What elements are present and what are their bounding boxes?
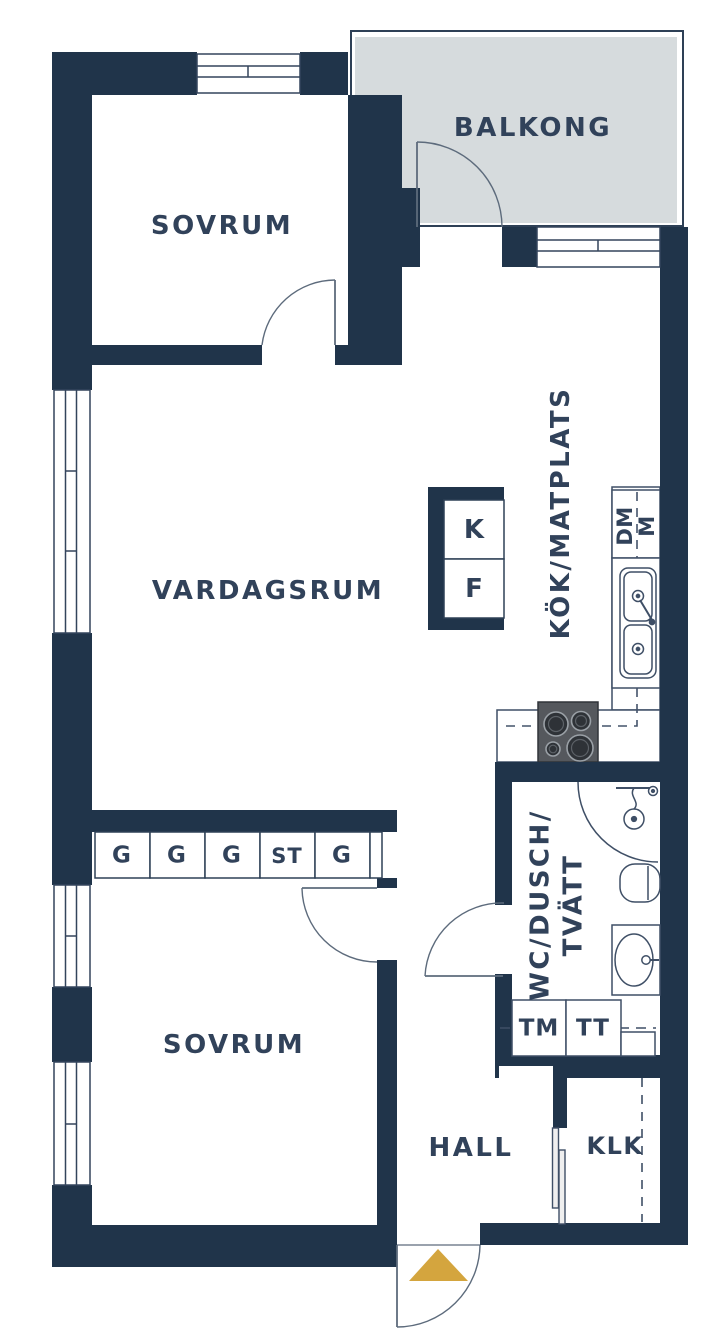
wardrobe-label-5: G [332,842,352,871]
door-bedroom-top [262,280,335,345]
door-bedroom-bottom [302,888,377,962]
fridge-label: K [464,514,484,547]
sliding-door [553,1128,566,1224]
wall-end-cap [370,832,382,878]
room-label-hall: HALL [428,1132,513,1165]
wardrobe-label-2: G [167,842,187,871]
kitchen-sink [620,568,656,678]
microwave-label: M [635,515,659,536]
floor-plan: BALKONG SOVRUM VARDAGSRUM KÖK/MATPLATS W… [0,0,718,1341]
window-bedroom-bottom-upper [54,885,90,987]
laundry-bench [621,1032,655,1056]
room-label-living-room: VARDAGSRUM [152,575,384,608]
bathroom-label-line1: WC/DUSCH/ [526,809,556,1001]
room-label-bedroom-top: SOVRUM [151,210,293,243]
window-bedroom-top [197,54,300,93]
freezer-label: F [465,573,483,606]
room-label-closet: KLK [587,1131,644,1161]
stove [538,702,598,762]
wardrobe-label-1: G [112,842,132,871]
dishwasher-label: DM [613,506,637,545]
wardrobe-label-3: G [222,842,242,871]
hall-closet-opening [499,1066,553,1078]
window-bedroom-bottom-lower [54,1062,90,1185]
door-bathroom [425,903,504,976]
tumble-dryer-label: TT [573,1015,613,1044]
entrance-arrow-icon [409,1249,468,1281]
window-living-room [54,390,90,633]
room-label-bedroom-bottom: SOVRUM [163,1029,305,1062]
dishwasher-microwave-label: DM M [614,506,658,545]
cleaning-closet-label: ST [271,843,302,869]
room-label-kitchen: KÖK/MATPLATS [545,387,578,640]
window-kitchen [537,227,660,267]
washbasin [612,925,660,995]
bathroom-label-line2: TVÄTT [558,854,588,957]
room-label-bathroom: WC/DUSCH/ TVÄTT [525,809,590,1001]
washing-machine-label: TM [516,1015,563,1044]
toilet [620,864,660,902]
room-label-balcony: BALKONG [454,112,612,145]
shower [578,782,658,862]
